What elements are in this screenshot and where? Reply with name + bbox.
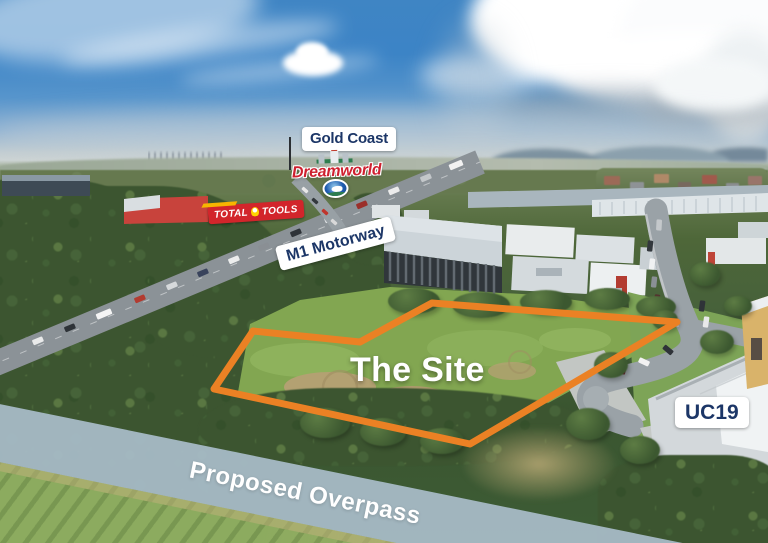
total-tools-word-total: TOTAL [214, 207, 249, 220]
dreamworld-castle-icon [316, 149, 352, 163]
the-site-label: The Site [350, 351, 485, 390]
total-tools-word-tools: TOOLS [262, 204, 298, 217]
total-tools-mascot-icon [251, 207, 260, 218]
gold-coast-label: Gold Coast [302, 127, 396, 151]
aerial-site-photo: Proposed Overpass Gold Coast Dreamworld … [0, 0, 768, 543]
uc19-label: UC19 [675, 397, 749, 428]
dreamworld-logo: Dreamworld [291, 149, 379, 200]
dreamworld-globe-icon [322, 179, 349, 199]
